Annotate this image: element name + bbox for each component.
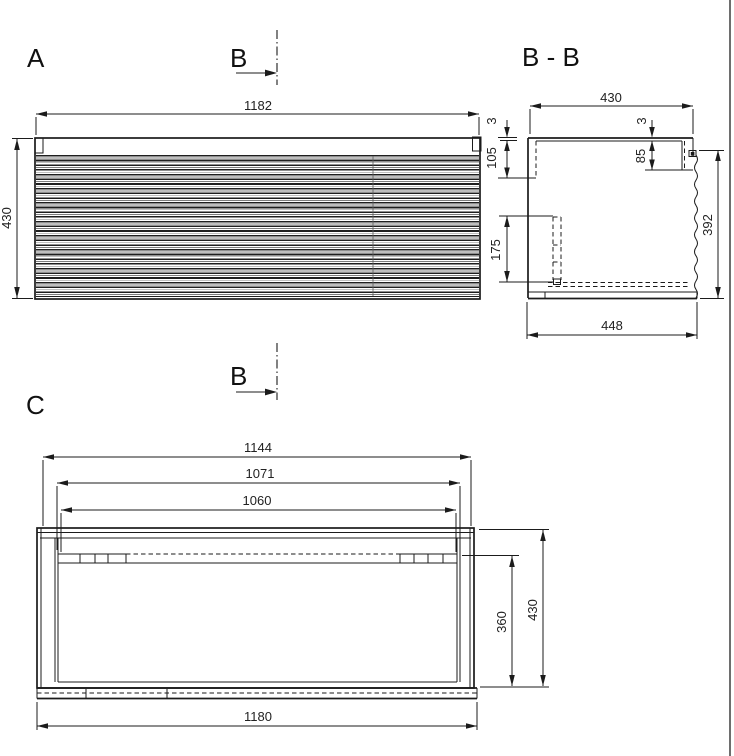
dim-rail-length-value: 1060 [243,493,272,508]
section-marker-top-label: B [230,43,247,73]
dim-top-thickness-right: 3 [634,117,655,137]
dim-carcass-width: 1180 [37,702,477,730]
view-section: B - B 430 [484,42,724,339]
dim-section-width-value: 430 [600,90,622,105]
dim-depth: 448 [527,302,697,339]
carcass-box [37,528,474,688]
dim-handle-recess-value: 85 [633,149,648,163]
section-arrow-icon [265,70,277,77]
dim-front-panel-height: 392 [699,150,724,299]
dim-back-rail-height-value: 105 [484,147,499,169]
sheet-border [729,0,731,756]
dim-slide-length-value: 175 [488,239,503,261]
section-marker-top: B [230,30,277,85]
dim-carcass-height-value: 430 [525,599,540,621]
dim-rail-span: 1071 [57,466,460,550]
dim-rail-length: 1060 [61,493,456,552]
front-outline [35,137,481,299]
dim-front-panel-height-value: 392 [700,214,715,236]
technical-drawing-sheet: A B 1182 [0,0,734,756]
view-c-label: C [26,390,45,420]
dim-depth-value: 448 [601,318,623,333]
dim-inner-height-value: 360 [494,611,509,633]
drawer-rail-row [58,554,457,563]
break-wavy-line [695,155,698,298]
dim-inner-height: 360 [462,556,519,687]
dim-top-thickness-left-value: 3 [484,117,499,124]
drawer-slide-hidden [553,217,561,285]
dim-front-height-value: 430 [0,207,14,229]
dim-top-thickness-left: 3 [484,117,517,140]
front-panel [35,138,480,299]
section-arrow-icon [265,389,277,396]
dim-top-thickness-right-value: 3 [634,117,649,124]
dim-carcass-height: 430 [479,530,549,688]
dim-carcass-width-value: 1180 [244,709,272,724]
dim-back-rail-height: 105 [484,141,510,179]
carcass-outline [37,528,477,699]
dim-handle-recess: 85 [633,141,655,171]
dim-slide-length: 175 [488,216,553,282]
dim-front-height: 430 [0,139,33,299]
drawing-linework: A B 1182 [0,0,734,756]
dim-rail-span-value: 1071 [246,466,275,481]
section-marker-bottom-label: B [230,361,247,391]
view-carcass: C B 1144 [26,343,549,730]
handle-end-cap-left [35,138,43,153]
section-outline [498,138,698,299]
bottom-panel-strip [37,688,477,699]
dim-inner-width-value: 1144 [244,440,272,455]
view-bb-label: B - B [522,42,580,72]
view-front: A B 1182 [0,30,481,299]
dim-front-width: 1182 [36,98,479,135]
dim-section-width: 430 [530,90,693,134]
view-a-label: A [27,43,45,73]
dim-front-width-value: 1182 [244,98,272,113]
section-marker-bottom: B [230,343,277,400]
